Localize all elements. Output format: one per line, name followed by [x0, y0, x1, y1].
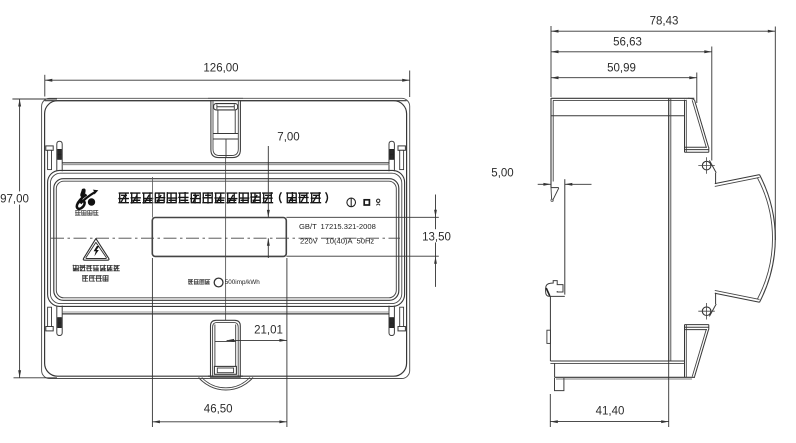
- svg-text:5,00: 5,00: [491, 167, 513, 179]
- svg-text:17215.321-2008: 17215.321-2008: [321, 222, 376, 231]
- svg-text:50,99: 50,99: [607, 62, 636, 74]
- svg-text:56,63: 56,63: [613, 36, 642, 48]
- svg-text:500imp/kWh: 500imp/kWh: [225, 279, 260, 286]
- svg-text:126,00: 126,00: [203, 62, 238, 74]
- svg-text:13,50: 13,50: [422, 231, 451, 243]
- svg-text:97,00: 97,00: [0, 194, 29, 206]
- svg-text:41,40: 41,40: [596, 405, 625, 417]
- svg-text:220V: 220V: [300, 236, 319, 245]
- svg-text:50Hz: 50Hz: [357, 236, 375, 245]
- svg-text:46,50: 46,50: [204, 404, 233, 416]
- svg-text:78,43: 78,43: [650, 15, 679, 27]
- svg-text:GB/T: GB/T: [299, 222, 317, 231]
- svg-text:10(40)A: 10(40)A: [326, 236, 354, 245]
- svg-text:21,01: 21,01: [254, 325, 283, 337]
- svg-text:7,00: 7,00: [277, 131, 299, 143]
